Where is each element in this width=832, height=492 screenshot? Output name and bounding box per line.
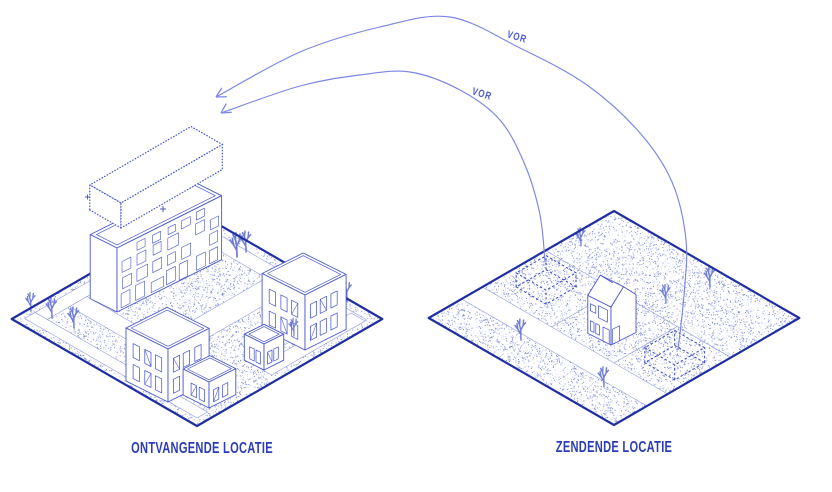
svg-text:ZENDENDE LOCATIE: ZENDENDE LOCATIE [556, 438, 672, 455]
svg-text:ONTVANGENDE LOCATIE: ONTVANGENDE LOCATIE [131, 439, 273, 456]
